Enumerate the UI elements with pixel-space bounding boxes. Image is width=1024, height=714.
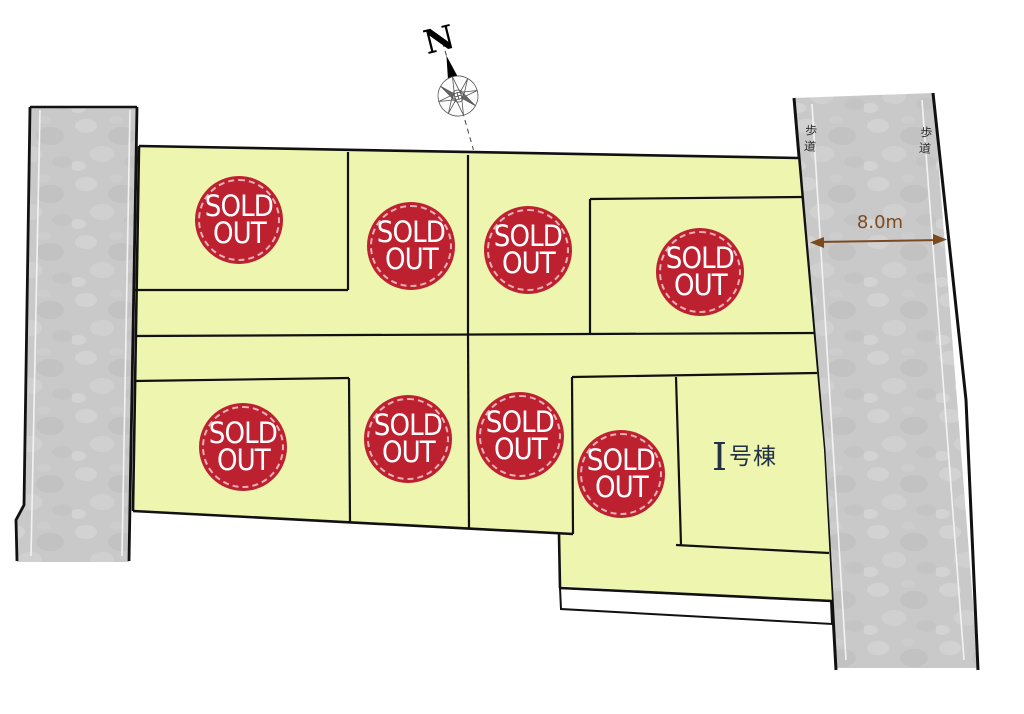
badge-text: OUT <box>595 474 648 501</box>
building-lot-label-prefix: I <box>712 438 727 476</box>
road-width-dimension-label: 8.0m <box>845 212 915 233</box>
badge-text: OUT <box>502 250 555 277</box>
divider-lot6-lot7 <box>468 335 469 529</box>
site-plan-drawing <box>0 0 1024 714</box>
sold-out-badge-7: SOLD OUT <box>476 392 564 480</box>
sidewalk-label-left: 歩道 <box>801 123 820 156</box>
left-road <box>16 107 137 562</box>
sold-out-badge-2: SOLD OUT <box>367 202 455 290</box>
divider-lot7-lot8 <box>572 377 573 534</box>
badge-text: OUT <box>385 246 438 273</box>
sold-out-badge-6: SOLD OUT <box>364 395 452 483</box>
badge-text: OUT <box>494 436 547 463</box>
sold-out-badge-3: SOLD OUT <box>484 206 572 294</box>
divider-lot5-lot6 <box>349 378 350 523</box>
compass-rose-icon <box>433 71 482 120</box>
badge-text: OUT <box>217 447 270 474</box>
badge-text: OUT <box>674 272 727 299</box>
sold-out-badge-8: SOLD OUT <box>577 430 665 518</box>
sold-out-badge-1: SOLD OUT <box>195 176 283 264</box>
sidewalk-label-right: 歩道 <box>916 125 936 158</box>
badge-text: OUT <box>382 439 435 466</box>
building-lot-label-suffix: 号棟 <box>729 446 777 469</box>
badge-text: OUT <box>213 220 266 247</box>
sold-out-badge-4: SOLD OUT <box>656 228 744 316</box>
site-plan-canvas: N 歩道 歩道 8.0m I 号棟 SOLD OUT SOLD OUT SOLD… <box>0 0 1024 714</box>
sold-out-badge-5: SOLD OUT <box>199 403 287 491</box>
building-lot-label: I 号棟 <box>712 438 777 476</box>
